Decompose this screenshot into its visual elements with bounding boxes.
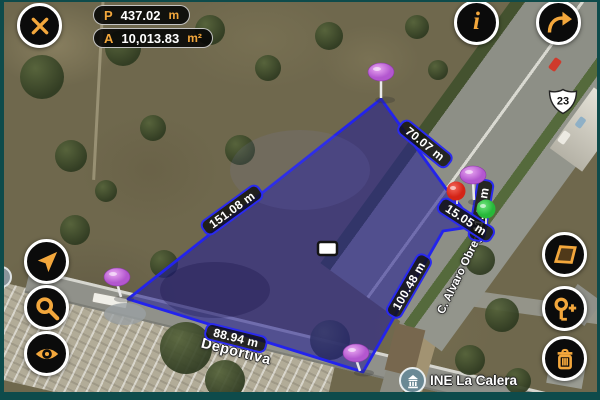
area-key: A [104, 31, 113, 46]
eye-icon [33, 340, 61, 368]
tree [465, 245, 495, 275]
trash-icon [552, 346, 578, 372]
perimeter-value: 437.02 [121, 8, 161, 23]
museum-building-icon [399, 367, 426, 394]
area-unit: m² [187, 31, 202, 45]
navigation-arrow-icon [35, 250, 59, 274]
tree [225, 135, 255, 165]
highway-shield: 23 [548, 88, 578, 115]
vertex-pin[interactable] [460, 166, 488, 206]
polygon-tool-button[interactable] [542, 232, 587, 277]
drag-handle[interactable] [318, 242, 337, 255]
trail [92, 0, 105, 180]
poi-label: INE La Calera [430, 373, 517, 388]
info-button[interactable]: i [454, 0, 499, 45]
poi-ine[interactable]: INE La Calera [399, 367, 517, 394]
polygon-layer [0, 0, 600, 400]
water-tank [104, 303, 146, 325]
close-button[interactable] [17, 3, 62, 48]
map-screen: Deportiva C. Alvaro Obregón 23 INE La Ca… [0, 0, 600, 400]
highway-number: 23 [557, 96, 569, 108]
tree [205, 360, 245, 400]
tree [405, 15, 429, 39]
polygon-tool-icon [552, 243, 578, 267]
tree [428, 60, 448, 80]
area-display: A 10,013.83 m² [93, 28, 213, 48]
tree [315, 22, 343, 50]
info-icon: i [473, 9, 480, 34]
tree [140, 115, 166, 141]
tree [55, 140, 87, 172]
car [557, 130, 571, 145]
perimeter-unit: m [168, 8, 179, 22]
building [550, 87, 600, 171]
search-button[interactable] [24, 285, 69, 330]
tree [95, 180, 117, 202]
perimeter-key: P [104, 8, 113, 23]
share-arrow-icon [545, 10, 573, 36]
area-value: 10,013.83 [121, 31, 179, 46]
point-marker-green[interactable] [477, 200, 496, 225]
car [574, 116, 586, 129]
tree [485, 298, 519, 332]
visibility-button[interactable] [24, 331, 69, 376]
vertex-pin[interactable] [368, 63, 395, 104]
locate-button[interactable] [24, 239, 69, 284]
tree [160, 322, 212, 374]
magnifier-icon [34, 295, 60, 321]
measured-polygon[interactable] [128, 99, 477, 372]
street-label-obregon: C. Alvaro Obregón [435, 220, 490, 316]
add-pin-icon [551, 295, 579, 323]
car [548, 57, 562, 72]
perimeter-display: P 437.02 m [93, 5, 190, 25]
share-button[interactable] [536, 0, 581, 45]
x-icon [30, 16, 50, 36]
poi-icon-partial [0, 266, 12, 288]
tree [255, 55, 281, 81]
delete-button[interactable] [542, 336, 587, 381]
add-pin-button[interactable] [542, 286, 587, 331]
vertex-pin[interactable] [104, 268, 134, 303]
tree [20, 55, 64, 99]
tree [60, 215, 90, 245]
